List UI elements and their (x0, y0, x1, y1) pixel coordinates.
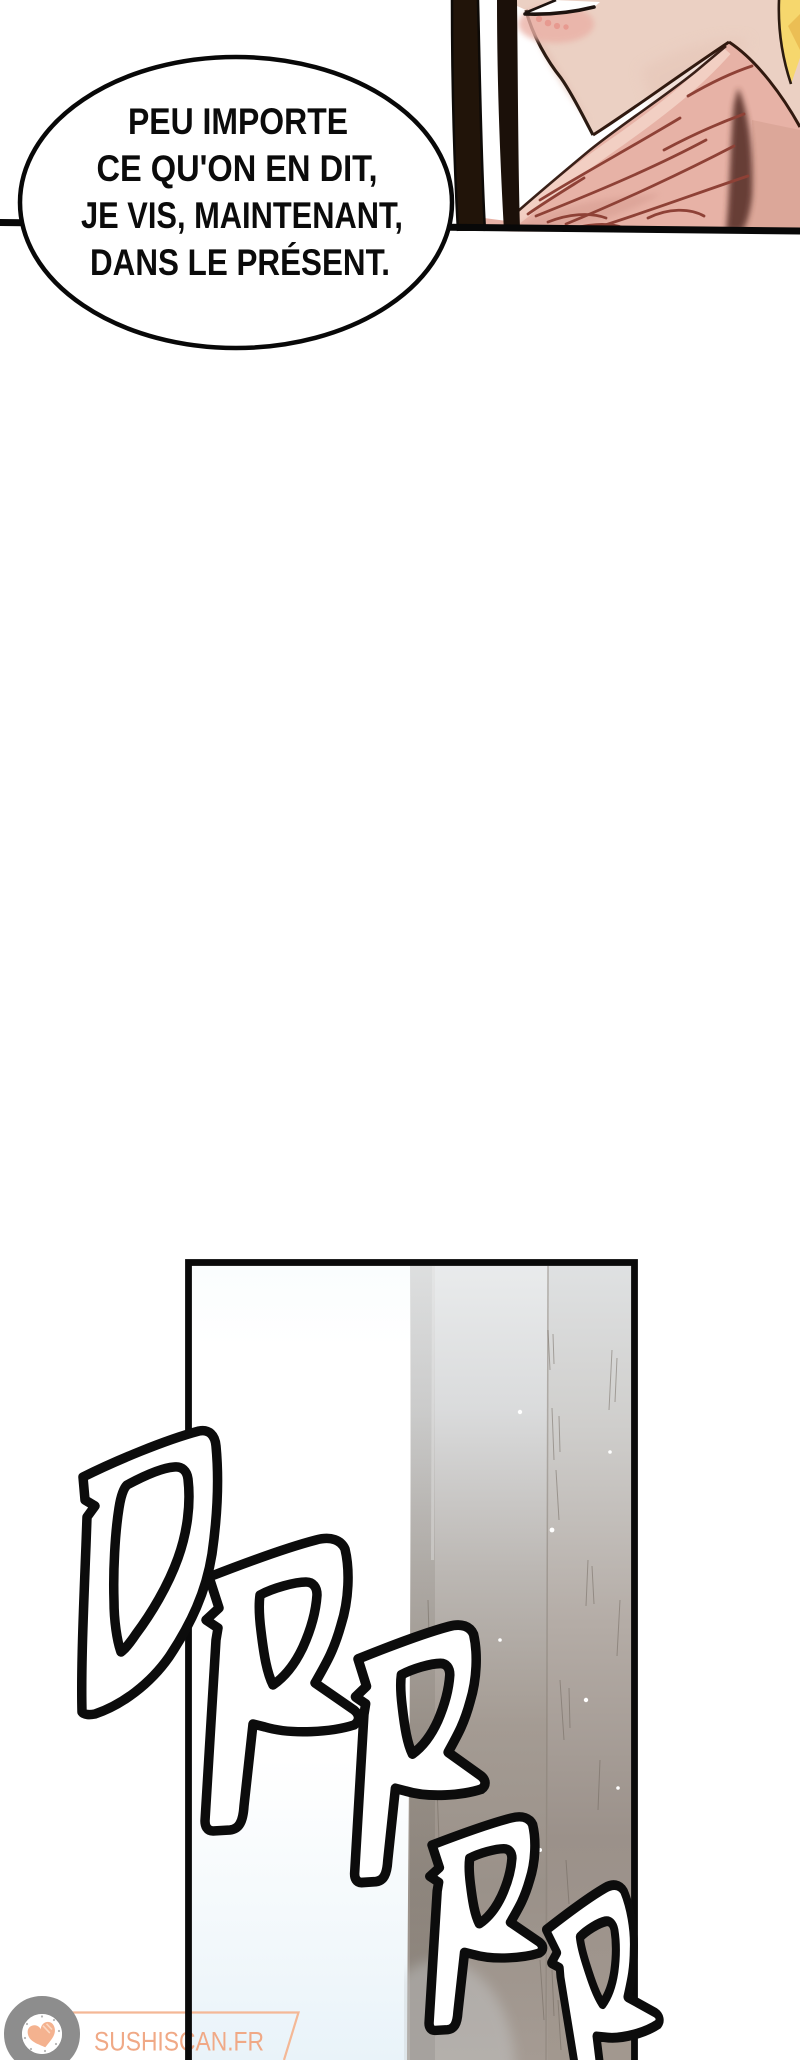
svg-text:DANS LE PRÉSENT.: DANS LE PRÉSENT. (90, 242, 390, 283)
svg-text:JE VIS, MAINTENANT,: JE VIS, MAINTENANT, (81, 195, 403, 236)
svg-text:CE QU'ON EN DIT,: CE QU'ON EN DIT, (97, 148, 378, 189)
svg-text:PEU IMPORTE: PEU IMPORTE (128, 101, 348, 142)
svg-text:SUSHISCAN.FR: SUSHISCAN.FR (94, 2027, 264, 2057)
